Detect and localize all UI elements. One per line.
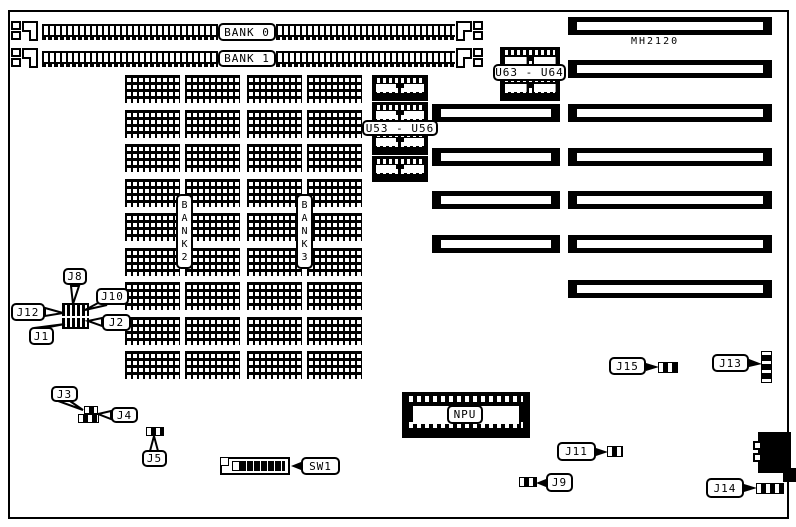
dram-chip — [247, 75, 302, 103]
dram-chip — [125, 213, 180, 241]
dram-chip — [247, 213, 302, 241]
label-j13: J13 — [712, 354, 749, 372]
label-npu: NPU — [447, 405, 483, 424]
dram-chip — [185, 282, 240, 310]
isa-slot-extension — [432, 104, 560, 122]
label-j1: J1 — [29, 327, 54, 345]
jumper-pins-j11 — [607, 446, 623, 457]
dram-chip — [307, 282, 362, 310]
label-j9: J9 — [546, 473, 573, 492]
dram-chip — [125, 282, 180, 310]
label-j5: J5 — [142, 450, 167, 467]
dip-switch-corner-marker — [220, 457, 229, 466]
dram-chip — [307, 248, 362, 276]
dram-chip — [307, 317, 362, 345]
label-j8: J8 — [63, 268, 87, 285]
simm-latch-icon — [455, 48, 483, 68]
motherboard-diagram: BANK 0 BANK 1 BANK2 BANK3 U53 - U56 U63 … — [0, 0, 796, 527]
jumper-pins-j14 — [756, 483, 784, 494]
dram-chip — [307, 213, 362, 241]
label-bank0: BANK 0 — [218, 23, 276, 41]
label-u53-u56: U53 - U56 — [362, 120, 438, 136]
keyboard-connector-notch — [753, 441, 762, 450]
simm-socket-bank0-left — [42, 24, 218, 40]
isa-slot-extension — [432, 191, 560, 209]
label-bank2: BANK2 — [176, 194, 193, 269]
dram-chip — [185, 317, 240, 345]
dram-chip — [125, 179, 180, 207]
jumper-pins-j5 — [146, 427, 164, 436]
jumper-pins-j9 — [519, 477, 537, 487]
isa-slot-extension — [432, 148, 560, 166]
dram-chip — [125, 110, 180, 138]
dram-chip — [247, 144, 302, 172]
jumper-pins-j13 — [761, 351, 772, 383]
dram-chip — [247, 317, 302, 345]
keyboard-connector — [758, 432, 791, 473]
isa-slot-segment — [568, 17, 772, 35]
isa-slot-segment — [568, 280, 772, 298]
dram-chip — [247, 282, 302, 310]
label-j15: J15 — [609, 357, 646, 375]
dram-chip — [185, 351, 240, 379]
jumper-block-j1-j2-j8-j10-j12 — [62, 303, 89, 329]
jumper-pins-j4 — [78, 414, 99, 423]
keyboard-connector-notch — [753, 453, 762, 462]
label-j10: J10 — [96, 288, 129, 305]
dram-chip — [185, 179, 240, 207]
simm-latch-icon — [455, 21, 483, 41]
label-j4: J4 — [111, 407, 138, 423]
dram-chip — [307, 110, 362, 138]
simm-socket-bank1-right — [276, 51, 455, 67]
jumper-pins-j3 — [84, 406, 98, 414]
board-model-label: MH2120 — [631, 36, 679, 47]
isa-slot-segment — [568, 235, 772, 253]
dram-chip — [307, 144, 362, 172]
simm-socket-bank1-left — [42, 51, 218, 67]
label-bank1: BANK 1 — [218, 50, 276, 67]
dram-chip — [307, 75, 362, 103]
dram-chip — [185, 75, 240, 103]
label-j12: J12 — [11, 303, 45, 321]
dram-chip — [307, 179, 362, 207]
dram-chip — [307, 351, 362, 379]
dram-chip — [185, 213, 240, 241]
label-j2: J2 — [102, 314, 131, 331]
dram-chip — [185, 110, 240, 138]
dram-chip — [247, 179, 302, 207]
rom-chip-u53-u56 — [372, 75, 428, 101]
isa-slot-segment — [568, 148, 772, 166]
isa-slot-segment — [568, 191, 772, 209]
dip-switch-cell-1 — [232, 461, 240, 471]
label-u63-u64: U63 - U64 — [493, 64, 566, 81]
label-sw1: SW1 — [301, 457, 340, 475]
dram-chip — [185, 248, 240, 276]
dram-chip — [125, 351, 180, 379]
dram-chip — [125, 317, 180, 345]
isa-slot-segment — [568, 104, 772, 122]
rom-chip-u53-u56 — [372, 156, 428, 182]
dram-chip — [185, 144, 240, 172]
isa-slot-segment — [568, 60, 772, 78]
simm-latch-icon — [11, 21, 39, 41]
dram-chip — [247, 248, 302, 276]
dram-chip — [247, 351, 302, 379]
label-j3: J3 — [51, 386, 78, 402]
label-bank3: BANK3 — [296, 194, 313, 269]
jumper-pins-j15 — [658, 362, 678, 373]
dram-chip — [125, 248, 180, 276]
simm-latch-icon — [11, 48, 39, 68]
simm-socket-bank0-right — [276, 24, 455, 40]
dram-chip — [125, 144, 180, 172]
dram-chip — [125, 75, 180, 103]
dip-switch-sw1 — [220, 457, 290, 475]
label-j14: J14 — [706, 478, 744, 498]
isa-slot-extension — [432, 235, 560, 253]
dram-chip — [247, 110, 302, 138]
keyboard-connector-step — [783, 468, 796, 482]
label-j11: J11 — [557, 442, 596, 461]
